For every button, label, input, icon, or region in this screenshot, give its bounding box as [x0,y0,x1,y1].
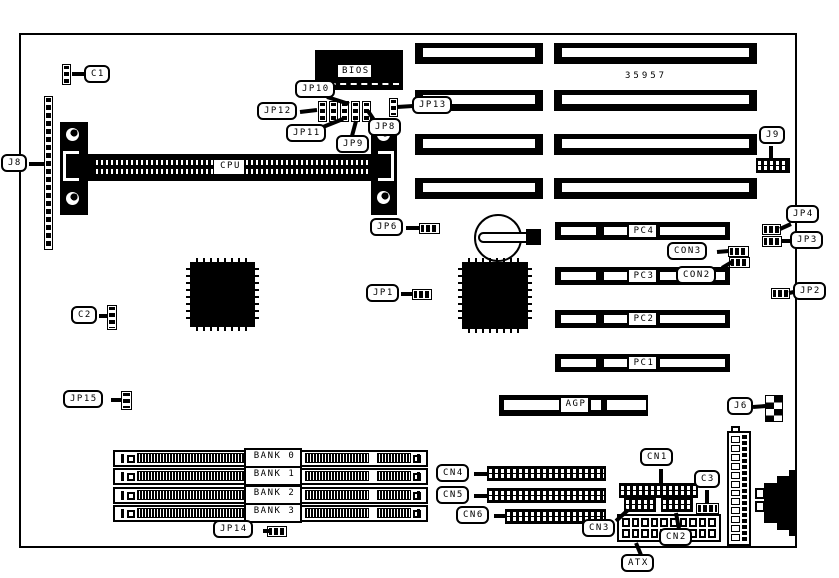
isa-slot [554,90,757,111]
keyboard-connector [764,483,790,523]
io-connector-notch [731,426,740,433]
jp11-jumper [329,101,338,122]
bios-label: BIOS [336,63,373,79]
cpu-label: CPU [213,159,245,175]
jp1-jumper [412,289,432,300]
bank-label: BANK 0 [244,448,302,468]
cn5-header [487,488,606,503]
callout-c3: C3 [694,470,720,488]
callout-con3: CON3 [667,242,707,260]
keyboard-connector-tab [755,488,765,499]
callout-jp15: JP15 [63,390,103,408]
callout-j9: J9 [759,126,785,144]
pci-slot: PC4 [555,222,730,240]
j9-header [756,158,790,173]
screw-hole [66,192,79,205]
keyboard-connector-tab [755,501,765,512]
callout-c1: C1 [84,65,110,83]
jp15-jumper [121,391,132,410]
motherboard-diagram: CPU BIOS 35957 PC4 PC3 [0,0,839,578]
screw-hole [377,191,390,204]
jp13-jumper [389,98,398,117]
callout-j6: J6 [727,397,753,415]
cn3-header [624,497,656,512]
pci-slot-label: PC2 [627,311,658,327]
cn4-header [487,466,606,481]
screw-hole [66,128,79,141]
callout-con2: CON2 [676,266,716,284]
io-connector-strip [727,431,751,546]
callout-cn6: CN6 [456,506,489,524]
callout-jp11: JP11 [286,124,326,142]
callout-atx: ATX [621,554,654,572]
bank-label: BANK 2 [244,485,302,505]
callout-jp13: JP13 [412,96,452,114]
callout-j8: J8 [1,154,27,172]
callout-jp10: JP10 [295,80,335,98]
bank-label: BANK 3 [244,503,302,523]
bank-label: BANK 1 [244,466,302,486]
cpu-bracket-notch-right [378,151,394,181]
c3-jumper [696,503,719,514]
jp12-jumper [318,101,327,122]
callout-jp14: JP14 [213,520,253,538]
callout-cn4: CN4 [436,464,469,482]
jp3-jumper [762,236,782,247]
isa-slot [415,178,543,199]
board-part-number: 35957 [625,71,667,81]
isa-slot [415,43,543,64]
jp14-jumper [267,526,287,537]
con3-header [728,246,749,257]
con2-header [729,257,750,268]
callout-jp2: JP2 [793,282,826,300]
isa-slot [554,134,757,155]
qfp-chip-left [190,262,255,327]
callout-cn5: CN5 [436,486,469,504]
c1-component [62,64,71,85]
callout-jp12: JP12 [257,102,297,120]
callout-jp8: JP8 [368,118,401,136]
callout-jp1: JP1 [366,284,399,302]
agp-label: AGP [559,396,590,414]
jp4-jumper [762,224,781,235]
pci-slot-label: PC3 [627,268,658,284]
callout-jp6: JP6 [370,218,403,236]
pci-slot: PC2 [555,310,730,328]
pci-slot-label: PC1 [627,355,658,371]
cn1-header [619,483,698,498]
callout-jp4: JP4 [786,205,819,223]
cn2-header [661,497,693,512]
isa-slot [554,43,757,64]
isa-slot [554,178,757,199]
j8-connector [44,96,53,250]
battery-clip-end [526,229,541,245]
jp2-jumper [771,288,790,299]
callout-cn3: CN3 [582,519,615,537]
jp6-jumper [419,223,440,234]
j6-block [765,395,783,422]
qfp-chip-right [462,262,528,329]
c2-component [107,305,117,330]
isa-slot [415,134,543,155]
callout-cn2: CN2 [659,528,692,546]
jp10-jumper [340,101,349,122]
callout-jp9: JP9 [336,135,369,153]
battery-clip [478,232,528,243]
cpu-bracket-notch-left [63,151,79,181]
keyboard-connector [789,470,797,536]
callout-c2: C2 [71,306,97,324]
pci-slot-label: PC4 [627,223,658,239]
pci-slot: PC1 [555,354,730,372]
jp9-jumper [351,101,360,122]
agp-slot: AGP [499,395,648,416]
callout-cn1: CN1 [640,448,673,466]
callout-jp3: JP3 [790,231,823,249]
